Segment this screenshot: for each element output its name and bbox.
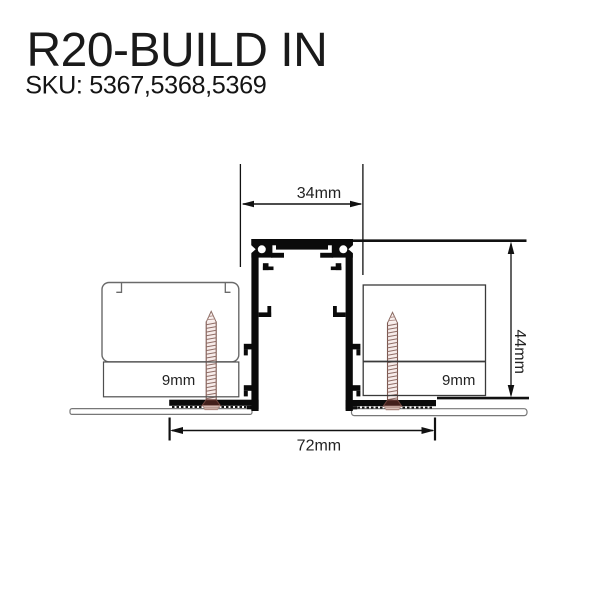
svg-text:SKU: 5367,5368,5369: SKU: 5367,5368,5369 — [25, 72, 266, 100]
svg-text:9mm: 9mm — [442, 372, 475, 389]
svg-text:R20-BUILD IN: R20-BUILD IN — [27, 24, 328, 77]
svg-text:34mm: 34mm — [297, 185, 341, 202]
svg-text:9mm: 9mm — [162, 372, 195, 389]
svg-text:72mm: 72mm — [297, 438, 341, 455]
svg-text:44mm: 44mm — [511, 329, 528, 373]
